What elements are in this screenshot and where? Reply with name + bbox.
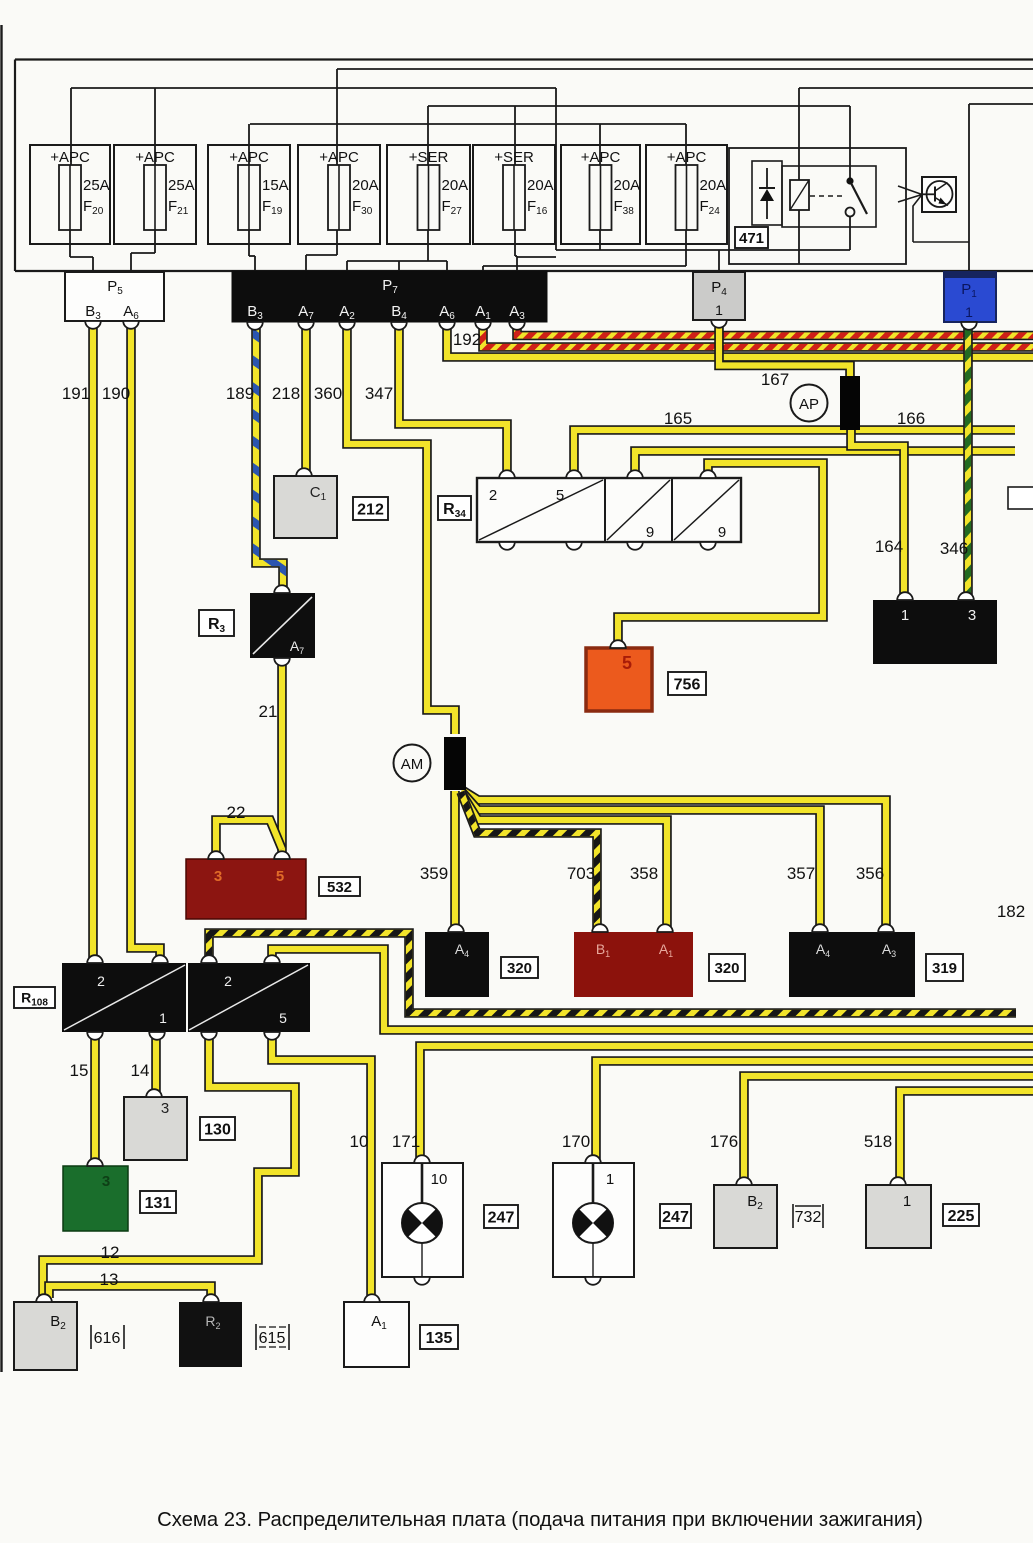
svg-text:2: 2 — [224, 973, 232, 989]
svg-text:319: 319 — [932, 960, 957, 977]
svg-text:15A: 15A — [262, 177, 289, 194]
svg-text:732: 732 — [795, 1209, 822, 1226]
svg-text:20A: 20A — [700, 177, 727, 194]
svg-text:22: 22 — [227, 803, 246, 822]
svg-text:+APC: +APC — [229, 149, 269, 166]
svg-text:9: 9 — [718, 524, 726, 541]
svg-text:+SER: +SER — [409, 149, 449, 166]
svg-text:616: 616 — [94, 1330, 121, 1347]
svg-text:189: 189 — [226, 384, 254, 403]
svg-text:AP: AP — [799, 396, 819, 413]
svg-text:10: 10 — [350, 1132, 369, 1151]
svg-text:3: 3 — [161, 1100, 169, 1117]
svg-text:346: 346 — [940, 539, 968, 558]
svg-text:5: 5 — [279, 1010, 287, 1026]
svg-text:1: 1 — [965, 304, 973, 320]
svg-text:135: 135 — [426, 1330, 453, 1347]
svg-text:167: 167 — [761, 370, 789, 389]
svg-text:20A: 20A — [527, 177, 554, 194]
svg-text:165: 165 — [664, 409, 692, 428]
svg-text:320: 320 — [714, 960, 739, 977]
svg-text:1: 1 — [715, 302, 723, 318]
svg-text:+APC: +APC — [581, 149, 621, 166]
svg-text:471: 471 — [739, 230, 764, 247]
svg-text:756: 756 — [674, 676, 701, 693]
svg-text:360: 360 — [314, 384, 342, 403]
svg-text:1: 1 — [606, 1171, 614, 1188]
svg-text:356: 356 — [856, 864, 884, 883]
svg-text:AM: AM — [401, 756, 424, 773]
svg-text:15: 15 — [70, 1061, 89, 1080]
svg-text:1: 1 — [159, 1010, 167, 1026]
svg-text:532: 532 — [327, 879, 352, 896]
svg-text:1: 1 — [903, 1193, 911, 1210]
svg-text:3: 3 — [968, 607, 976, 624]
svg-text:5: 5 — [622, 653, 632, 673]
svg-text:3: 3 — [102, 1173, 110, 1190]
svg-text:171: 171 — [392, 1132, 420, 1151]
svg-text:320: 320 — [507, 960, 532, 977]
svg-text:247: 247 — [488, 1209, 515, 1226]
svg-text:359: 359 — [420, 864, 448, 883]
svg-text:182: 182 — [997, 902, 1025, 921]
svg-text:+APC: +APC — [50, 149, 90, 166]
svg-text:218: 218 — [272, 384, 300, 403]
svg-text:+APC: +APC — [135, 149, 175, 166]
svg-text:225: 225 — [948, 1208, 975, 1225]
svg-text:247: 247 — [662, 1209, 689, 1226]
svg-text:20A: 20A — [352, 177, 379, 194]
svg-text:21: 21 — [259, 702, 278, 721]
svg-text:Схема 23. Распределительная пл: Схема 23. Распределительная плата (подач… — [157, 1509, 923, 1531]
svg-text:357: 357 — [787, 864, 815, 883]
svg-text:130: 130 — [204, 1121, 231, 1138]
svg-text:358: 358 — [630, 864, 658, 883]
svg-text:+APC: +APC — [667, 149, 707, 166]
svg-text:2: 2 — [97, 973, 105, 989]
svg-text:164: 164 — [875, 537, 903, 556]
svg-text:166: 166 — [897, 409, 925, 428]
svg-text:25A: 25A — [168, 177, 195, 194]
svg-text:+SER: +SER — [494, 149, 534, 166]
svg-text:20A: 20A — [442, 177, 469, 194]
svg-text:9: 9 — [646, 524, 654, 541]
svg-text:5: 5 — [276, 868, 284, 885]
svg-text:10: 10 — [431, 1171, 448, 1188]
svg-text:14: 14 — [131, 1061, 150, 1080]
svg-text:518: 518 — [864, 1132, 892, 1151]
svg-text:192: 192 — [453, 330, 481, 349]
svg-text:1: 1 — [901, 607, 909, 624]
svg-text:+APC: +APC — [319, 149, 359, 166]
svg-text:20A: 20A — [614, 177, 641, 194]
svg-text:2: 2 — [489, 487, 497, 504]
svg-text:703: 703 — [567, 864, 595, 883]
svg-text:615: 615 — [259, 1330, 286, 1347]
svg-text:25A: 25A — [83, 177, 110, 194]
svg-text:191: 191 — [62, 384, 90, 403]
svg-text:170: 170 — [562, 1132, 590, 1151]
svg-text:3: 3 — [214, 868, 222, 885]
svg-text:190: 190 — [102, 384, 130, 403]
svg-text:176: 176 — [710, 1132, 738, 1151]
svg-text:212: 212 — [357, 501, 384, 518]
svg-text:5: 5 — [556, 487, 564, 504]
svg-text:347: 347 — [365, 384, 393, 403]
svg-text:131: 131 — [145, 1195, 172, 1212]
svg-text:12: 12 — [101, 1243, 120, 1262]
svg-text:13: 13 — [100, 1270, 119, 1289]
